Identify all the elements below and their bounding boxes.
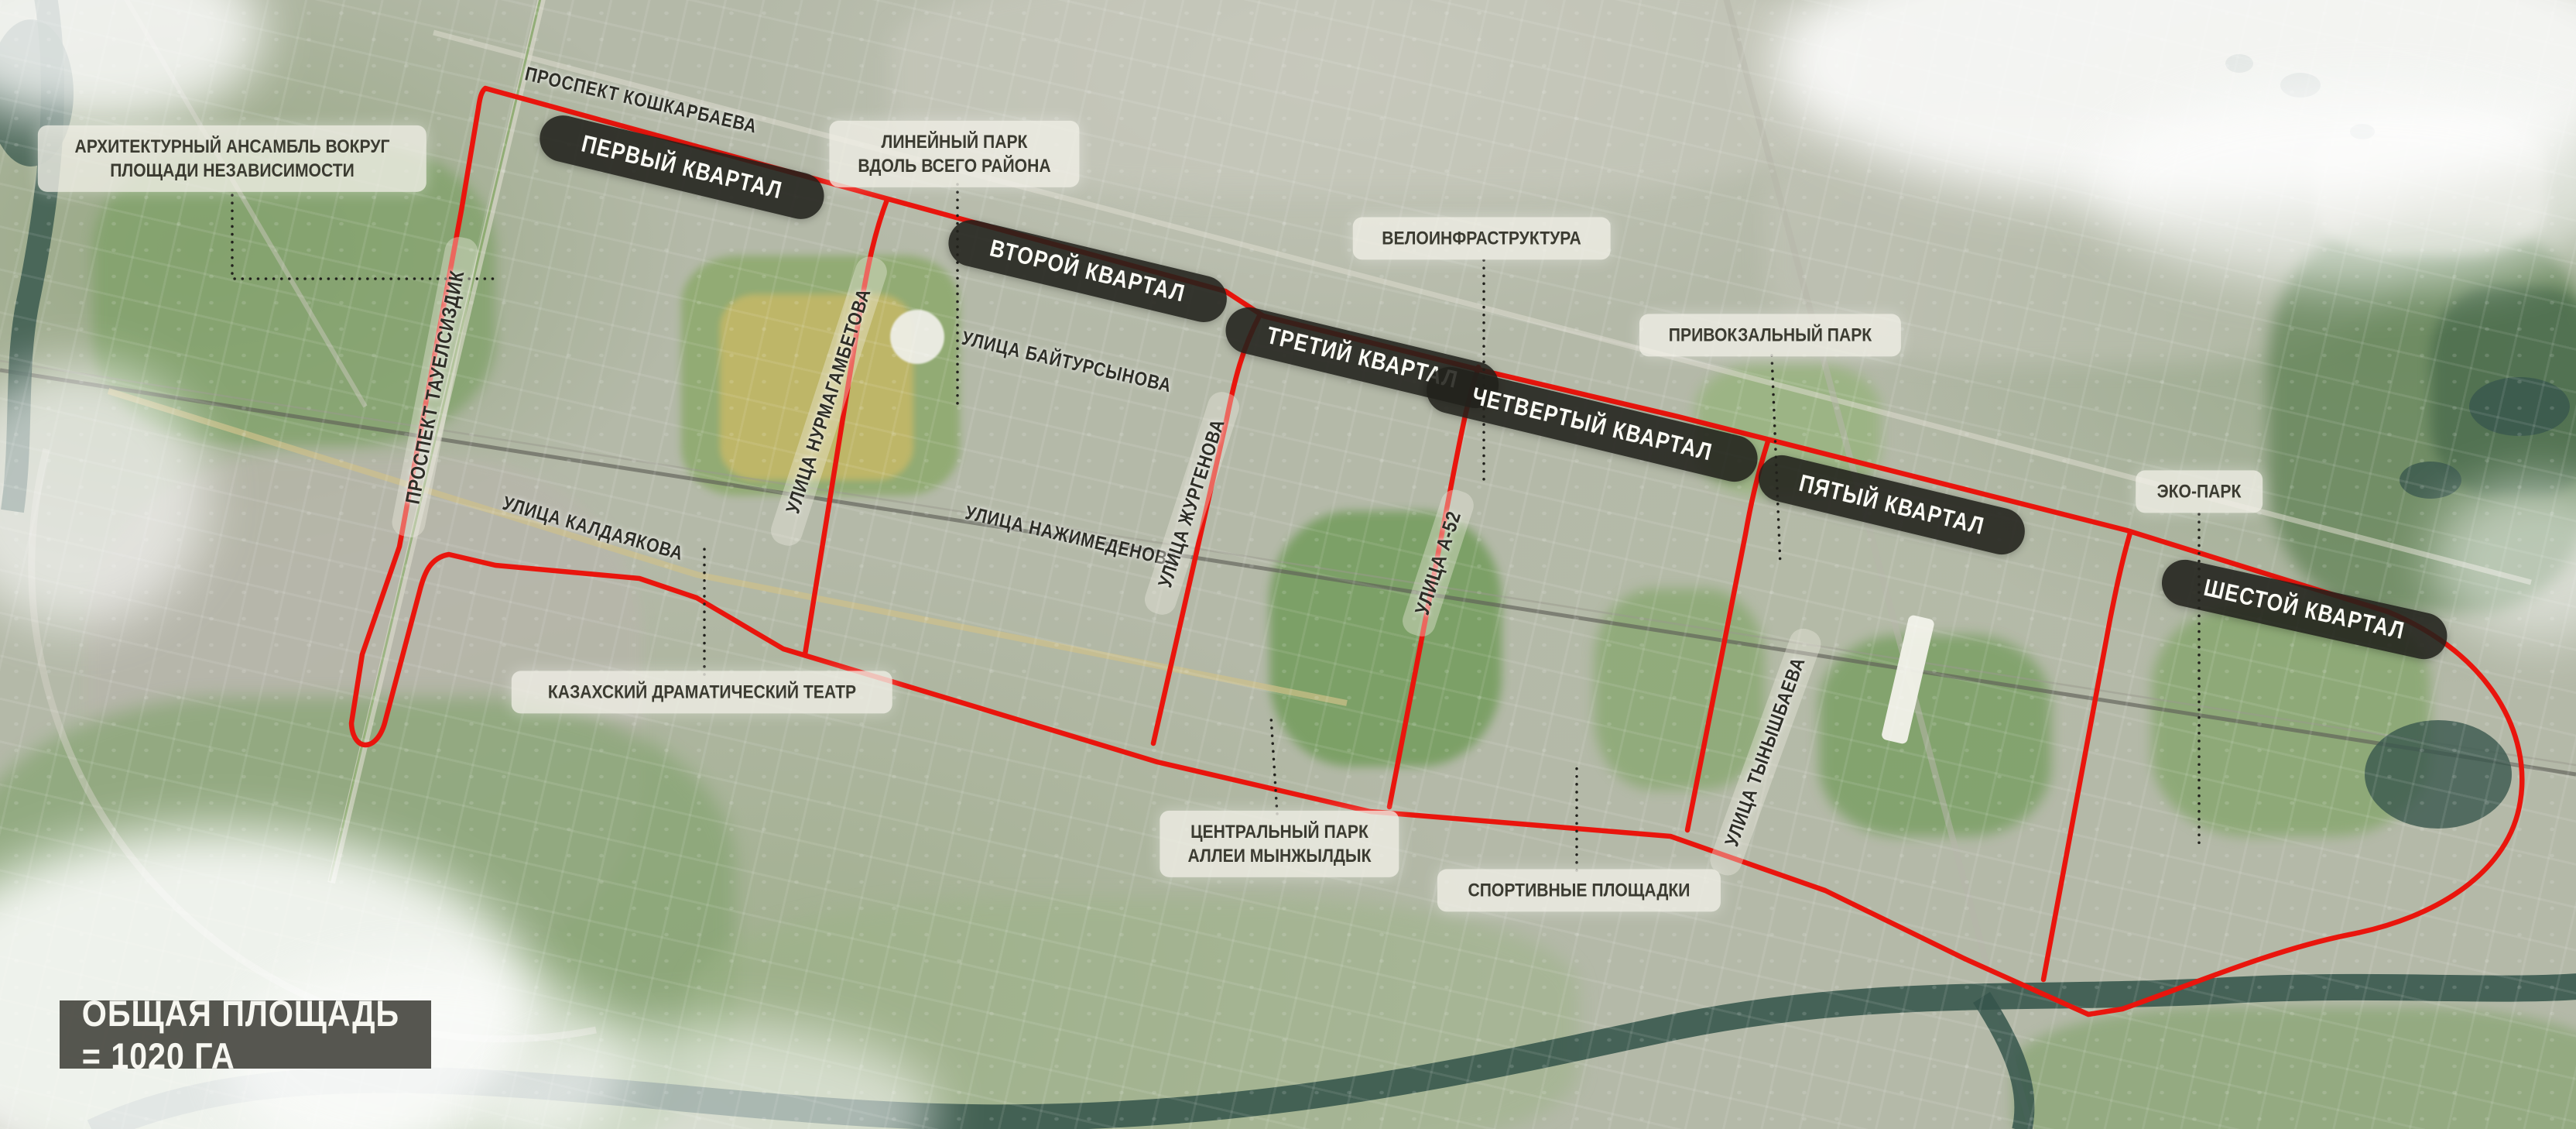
total-area-text: ОБЩАЯ ПЛОЩАДЬ = 1020 ГА <box>82 992 409 1077</box>
info-sport-line1: СПОРТИВНЫЕ ПЛОЩАДКИ <box>1468 878 1690 902</box>
info-eco-park-line1: ЭКО-ПАРК <box>2157 479 2242 503</box>
info-arch-line1: АРХИТЕКТУРНЫЙ АНСАМБЛЬ ВОКРУГ <box>75 135 390 159</box>
info-box-sport: СПОРТИВНЫЕ ПЛОЩАДКИ <box>1437 869 1721 911</box>
info-linear-line2: ВДОЛЬ ВСЕГО РАЙОНА <box>858 154 1050 178</box>
masterplan-map: ПРОСПЕКТ КОШКАРБАЕВА ПРОСПЕКТ ТАУЕЛСИЗДИ… <box>0 0 2576 1129</box>
info-box-arch-ensemble: АРХИТЕКТУРНЫЙ АНСАМБЛЬ ВОКРУГ ПЛОЩАДИ НЕ… <box>38 125 426 192</box>
info-box-station-park: ПРИВОКЗАЛЬНЫЙ ПАРК <box>1639 314 1901 356</box>
info-linear-line1: ЛИНЕЙНЫЙ ПАРК <box>858 130 1050 154</box>
info-box-central-park: ЦЕНТРАЛЬНЫЙ ПАРК АЛЛЕИ МЫНЖЫЛДЫК <box>1160 811 1399 877</box>
leader-central-park <box>1271 716 1277 814</box>
info-velo-line1: ВЕЛОИНФРАСТРУКТУРА <box>1382 226 1581 250</box>
info-central-park-line2: АЛЛЕИ МЫНЖЫЛДЫК <box>1187 844 1371 868</box>
total-area-box: ОБЩАЯ ПЛОЩАДЬ = 1020 ГА <box>60 1000 431 1069</box>
divider-q5-q6 <box>2043 533 2130 980</box>
info-central-park-line1: ЦЕНТРАЛЬНЫЙ ПАРК <box>1187 820 1371 844</box>
info-arch-line2: ПЛОЩАДИ НЕЗАВИСИМОСТИ <box>75 159 390 183</box>
info-box-theater: КАЗАХСКИЙ ДРАМАТИЧЕСКИЙ ТЕАТР <box>512 671 892 713</box>
info-box-velo: ВЕЛОИНФРАСТРУКТУРА <box>1353 217 1611 259</box>
info-station-park-line1: ПРИВОКЗАЛЬНЫЙ ПАРК <box>1669 323 1872 347</box>
info-box-linear-park: ЛИНЕЙНЫЙ ПАРК ВДОЛЬ ВСЕГО РАЙОНА <box>829 121 1079 187</box>
info-theater-line1: КАЗАХСКИЙ ДРАМАТИЧЕСКИЙ ТЕАТР <box>548 680 856 704</box>
info-box-eco-park: ЭКО-ПАРК <box>2136 470 2263 513</box>
